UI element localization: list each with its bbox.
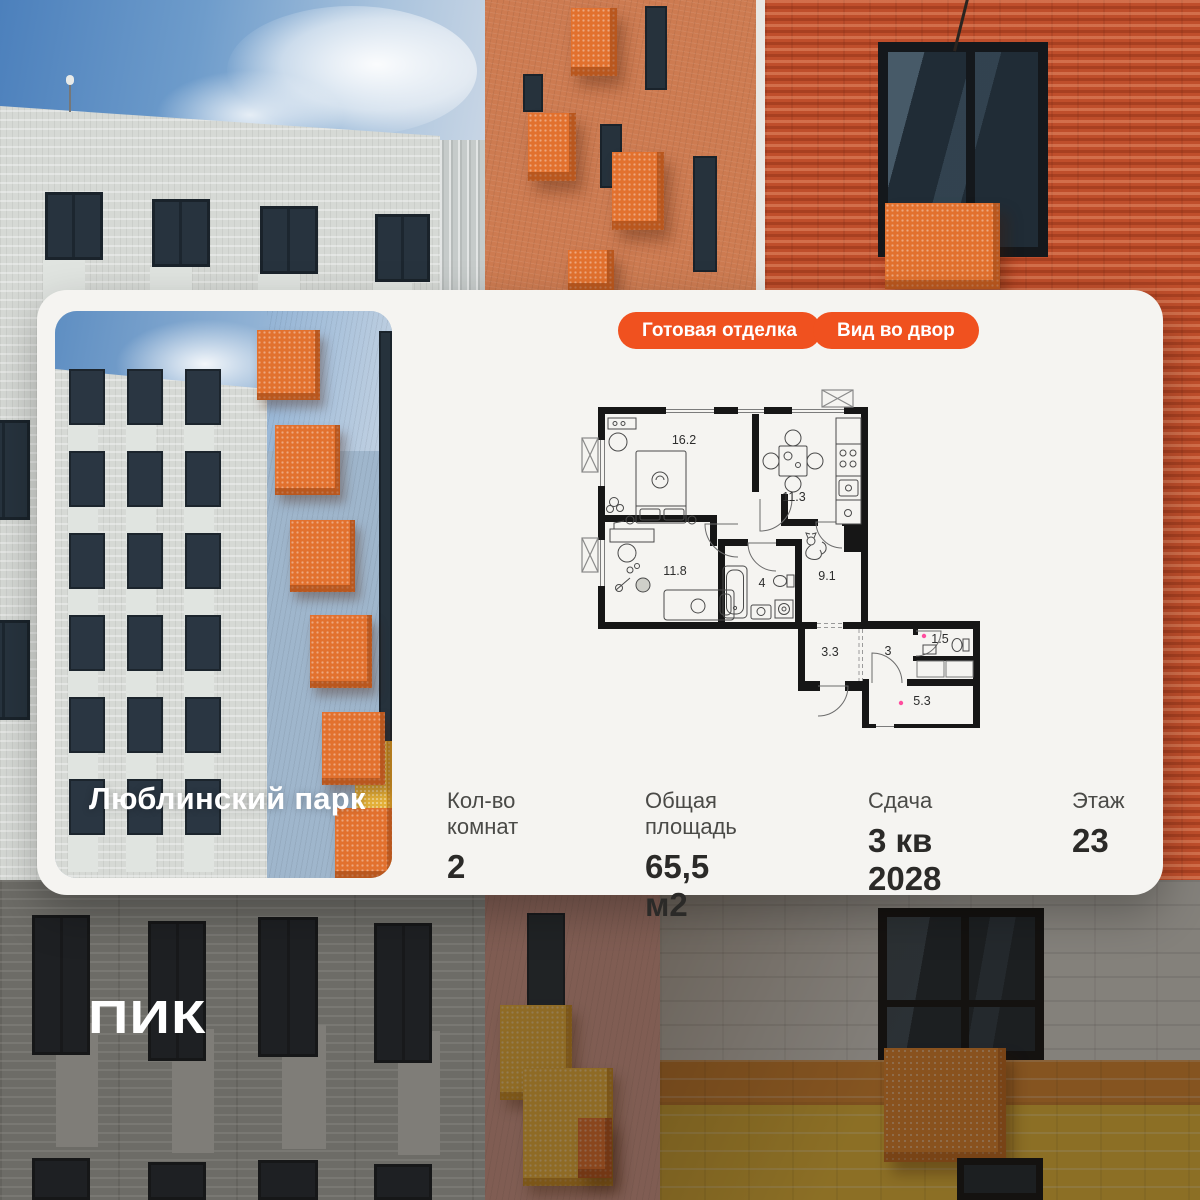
room-area-label: 4 (759, 576, 766, 590)
balcony-box (290, 520, 355, 592)
pik-logo: ПИК (88, 990, 207, 1044)
floor-plan: 16.2 11.3 11.8 4 9.1 3.3 3 1.5 5.3 (580, 376, 1000, 728)
room-area-label: 3.3 (821, 645, 838, 659)
stat-completion: Сдача 3 кв 2028 (868, 788, 941, 898)
window (0, 620, 30, 720)
balcony-box (568, 250, 614, 292)
balcony-box (885, 203, 1000, 289)
balcony-box (322, 712, 385, 785)
listing-card[interactable]: Люблинский парк Готовая отделка Вид во д… (37, 290, 1163, 895)
dot (922, 634, 926, 638)
badge-view[interactable]: Вид во двор (813, 312, 979, 349)
balcony-box (612, 152, 664, 230)
balcony-box (257, 330, 320, 400)
window (523, 74, 543, 112)
rooftop-lamp (69, 84, 71, 112)
room-area-label: 11.3 (782, 490, 805, 504)
stat-rooms: Кол-во комнат 2 (447, 788, 518, 886)
window-grid (69, 369, 253, 829)
room-area-label: 5.3 (913, 694, 930, 708)
project-name: Люблинский парк (89, 781, 379, 817)
window (45, 192, 103, 260)
project-photo: Люблинский парк (55, 311, 392, 878)
doors (705, 499, 941, 716)
balcony-box (310, 615, 372, 688)
window (693, 156, 717, 272)
room-area-label: 3 (885, 644, 892, 658)
stat-label: Общая площадь (645, 788, 737, 840)
stat-value: 23 (1072, 822, 1125, 860)
balcony-box (335, 808, 392, 878)
stat-label: Сдача (868, 788, 941, 814)
room-area-label: 1.5 (931, 632, 948, 646)
window (0, 420, 30, 520)
window (375, 214, 430, 282)
room-area-label: 9.1 (818, 569, 835, 583)
balcony-box (571, 8, 617, 76)
dot (899, 701, 903, 705)
stat-value: 3 кв 2028 (868, 822, 941, 898)
stat-floor: Этаж 23 (1072, 788, 1125, 860)
badge-finishing[interactable]: Готовая отделка (618, 312, 821, 349)
stat-label: Кол-во комнат (447, 788, 518, 840)
stat-value: 65,5 м2 (645, 848, 737, 924)
window (260, 206, 318, 274)
window (645, 6, 667, 90)
balcony-box (528, 113, 576, 181)
stat-label: Этаж (1072, 788, 1125, 814)
stat-value: 2 (447, 848, 518, 886)
balcony-box (275, 425, 340, 495)
window (152, 199, 210, 267)
stat-area: Общая площадь 65,5 м2 (645, 788, 737, 924)
room-area-label: 16.2 (672, 433, 696, 447)
room-area-label: 11.8 (663, 564, 686, 578)
furniture (607, 418, 974, 677)
